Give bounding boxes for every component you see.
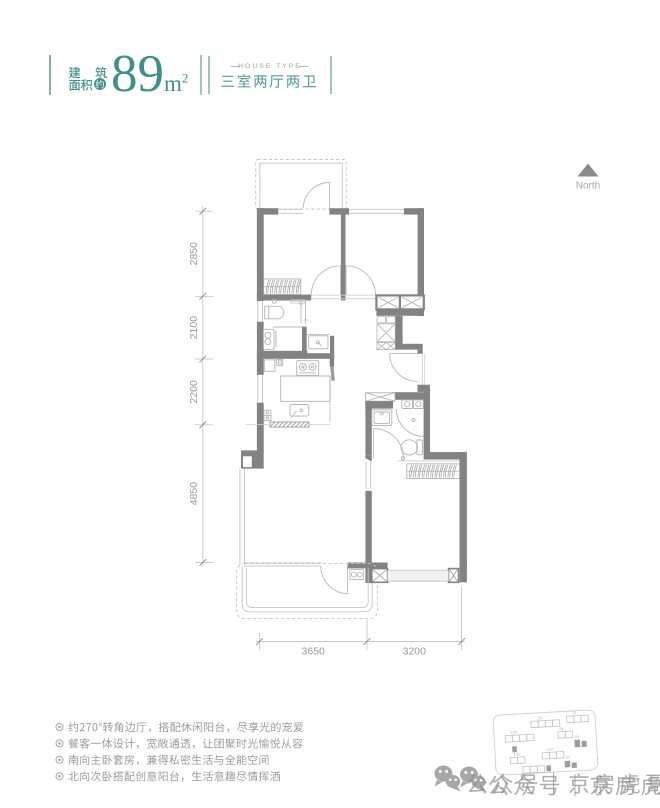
svg-text:15#: 15#	[546, 747, 554, 752]
svg-text:12#: 12#	[513, 751, 521, 756]
svg-text:2850: 2850	[188, 242, 200, 266]
svg-text:2100: 2100	[188, 316, 200, 340]
svg-text:3650: 3650	[302, 646, 326, 658]
svg-text:North: North	[576, 181, 600, 192]
svg-text:3200: 3200	[403, 646, 427, 658]
svg-text:10#: 10#	[510, 730, 518, 735]
svg-text:4850: 4850	[188, 482, 200, 506]
svg-text:2200: 2200	[188, 380, 200, 404]
